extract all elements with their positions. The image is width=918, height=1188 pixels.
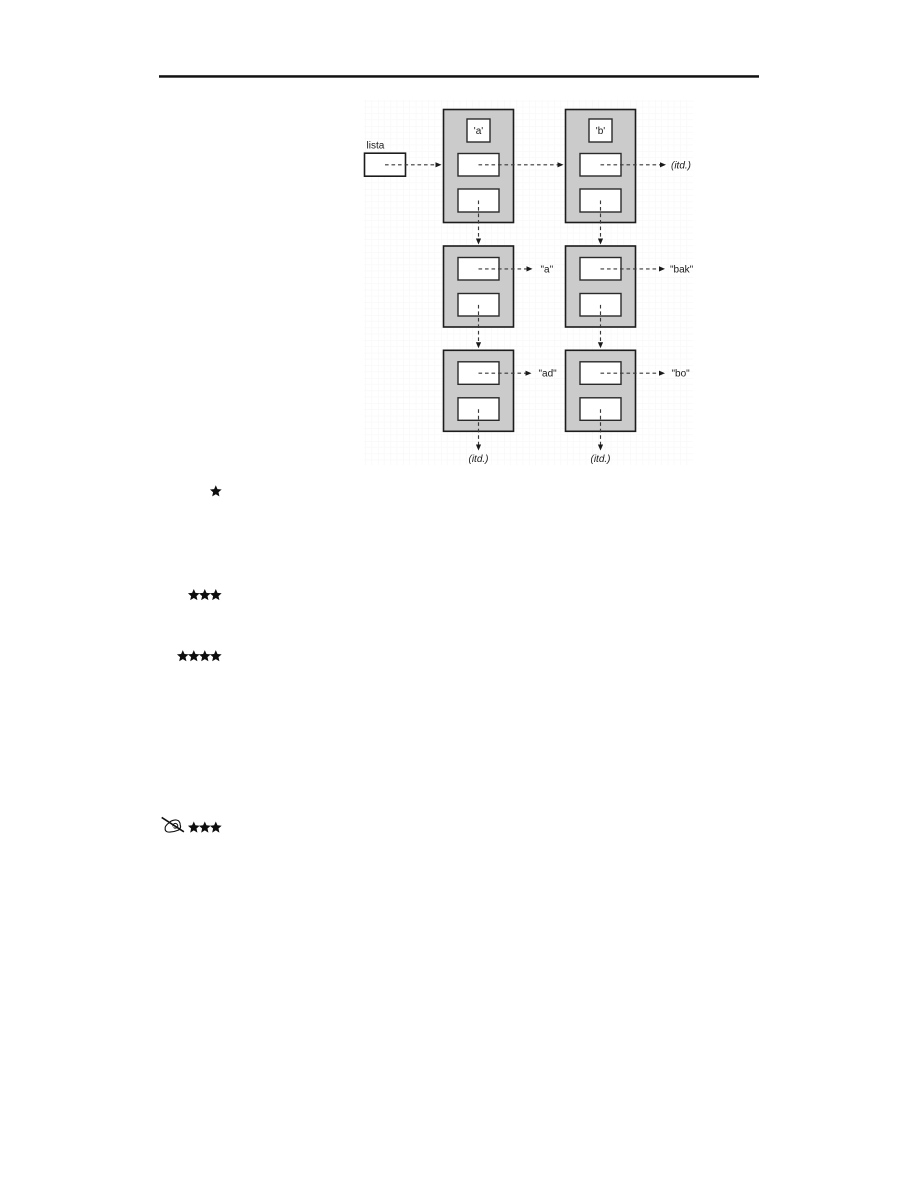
svg-text:(itd.): (itd.) — [671, 160, 691, 171]
svg-text:(itd.): (itd.) — [469, 454, 489, 465]
svg-text:"ad": "ad" — [539, 369, 558, 380]
svg-text:"bak": "bak" — [670, 264, 694, 275]
svg-text:lista: lista — [367, 141, 385, 152]
svg-text:'b': 'b' — [596, 126, 605, 137]
svg-text:(itd.): (itd.) — [591, 454, 611, 465]
svg-text:'a': 'a' — [474, 126, 483, 137]
svg-text:"bo": "bo" — [672, 369, 691, 380]
svg-text:"a": "a" — [541, 264, 554, 275]
